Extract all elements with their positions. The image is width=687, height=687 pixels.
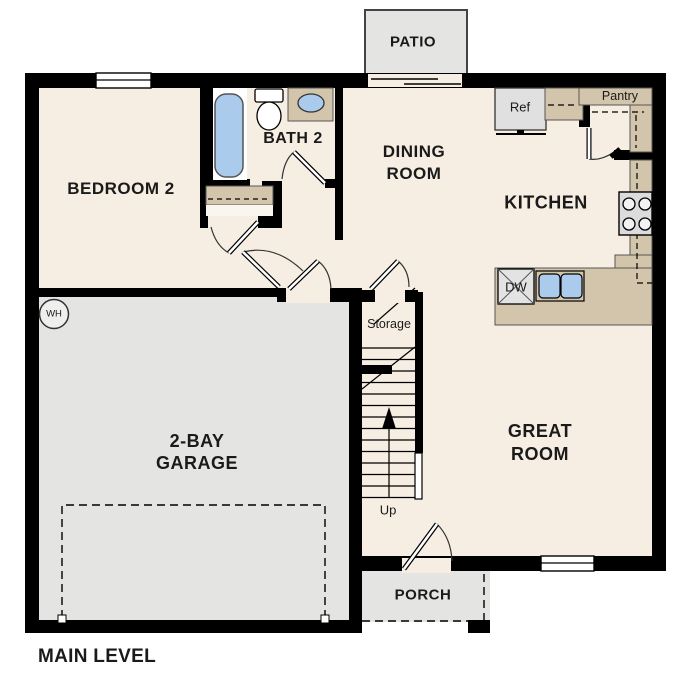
- label-ref: Ref: [510, 100, 530, 115]
- label-wh: WH: [46, 309, 62, 320]
- label-dining-room: DINING ROOM: [383, 141, 446, 185]
- page-title: MAIN LEVEL: [38, 646, 156, 668]
- label-up: Up: [380, 503, 397, 518]
- wall-garage-right: [349, 292, 362, 633]
- wall-left: [25, 73, 39, 633]
- label-bath2: BATH 2: [263, 130, 323, 148]
- label-bedroom2: BEDROOM 2: [67, 179, 174, 199]
- label-garage: 2-BAY GARAGE: [156, 430, 238, 474]
- wall-under-tub: [200, 179, 250, 188]
- wall-garage-door-stub-right: [330, 288, 362, 302]
- wall-bottom-garage: [25, 620, 362, 633]
- wall-pantry-stub: [579, 105, 590, 127]
- floor-plan: BEDROOM 2 BATH 2 DINING ROOM KITCHEN GRE…: [0, 0, 687, 687]
- wall-porch-corner: [468, 620, 490, 633]
- wall-bath-stub-left: [262, 181, 282, 190]
- label-pantry: Pantry: [602, 89, 638, 103]
- wall-right: [652, 73, 666, 571]
- label-storage: Storage: [367, 317, 411, 331]
- wall-stairs-right: [415, 292, 423, 453]
- label-dw: DW: [505, 280, 527, 295]
- wall-top: [25, 73, 666, 88]
- wall-storage-bottom: [352, 365, 392, 374]
- wall-closet-stub-left: [200, 215, 208, 228]
- wall-garage-door-stub-left: [277, 288, 286, 302]
- wall-bedroom-right: [200, 88, 213, 187]
- wall-bedroom-bottom: [25, 288, 278, 297]
- label-kitchen: KITCHEN: [504, 193, 588, 214]
- wall-pantry-bottom: [614, 150, 652, 160]
- wall-storage-stub-left: [362, 290, 375, 302]
- label-great-room: GREAT ROOM: [508, 420, 572, 466]
- wall-bottom-greatroom: [349, 556, 666, 571]
- label-porch: PORCH: [395, 587, 452, 604]
- wall-closet-stub-right: [258, 215, 277, 228]
- label-patio: PATIO: [390, 34, 436, 51]
- wall-dining-hall: [335, 88, 343, 240]
